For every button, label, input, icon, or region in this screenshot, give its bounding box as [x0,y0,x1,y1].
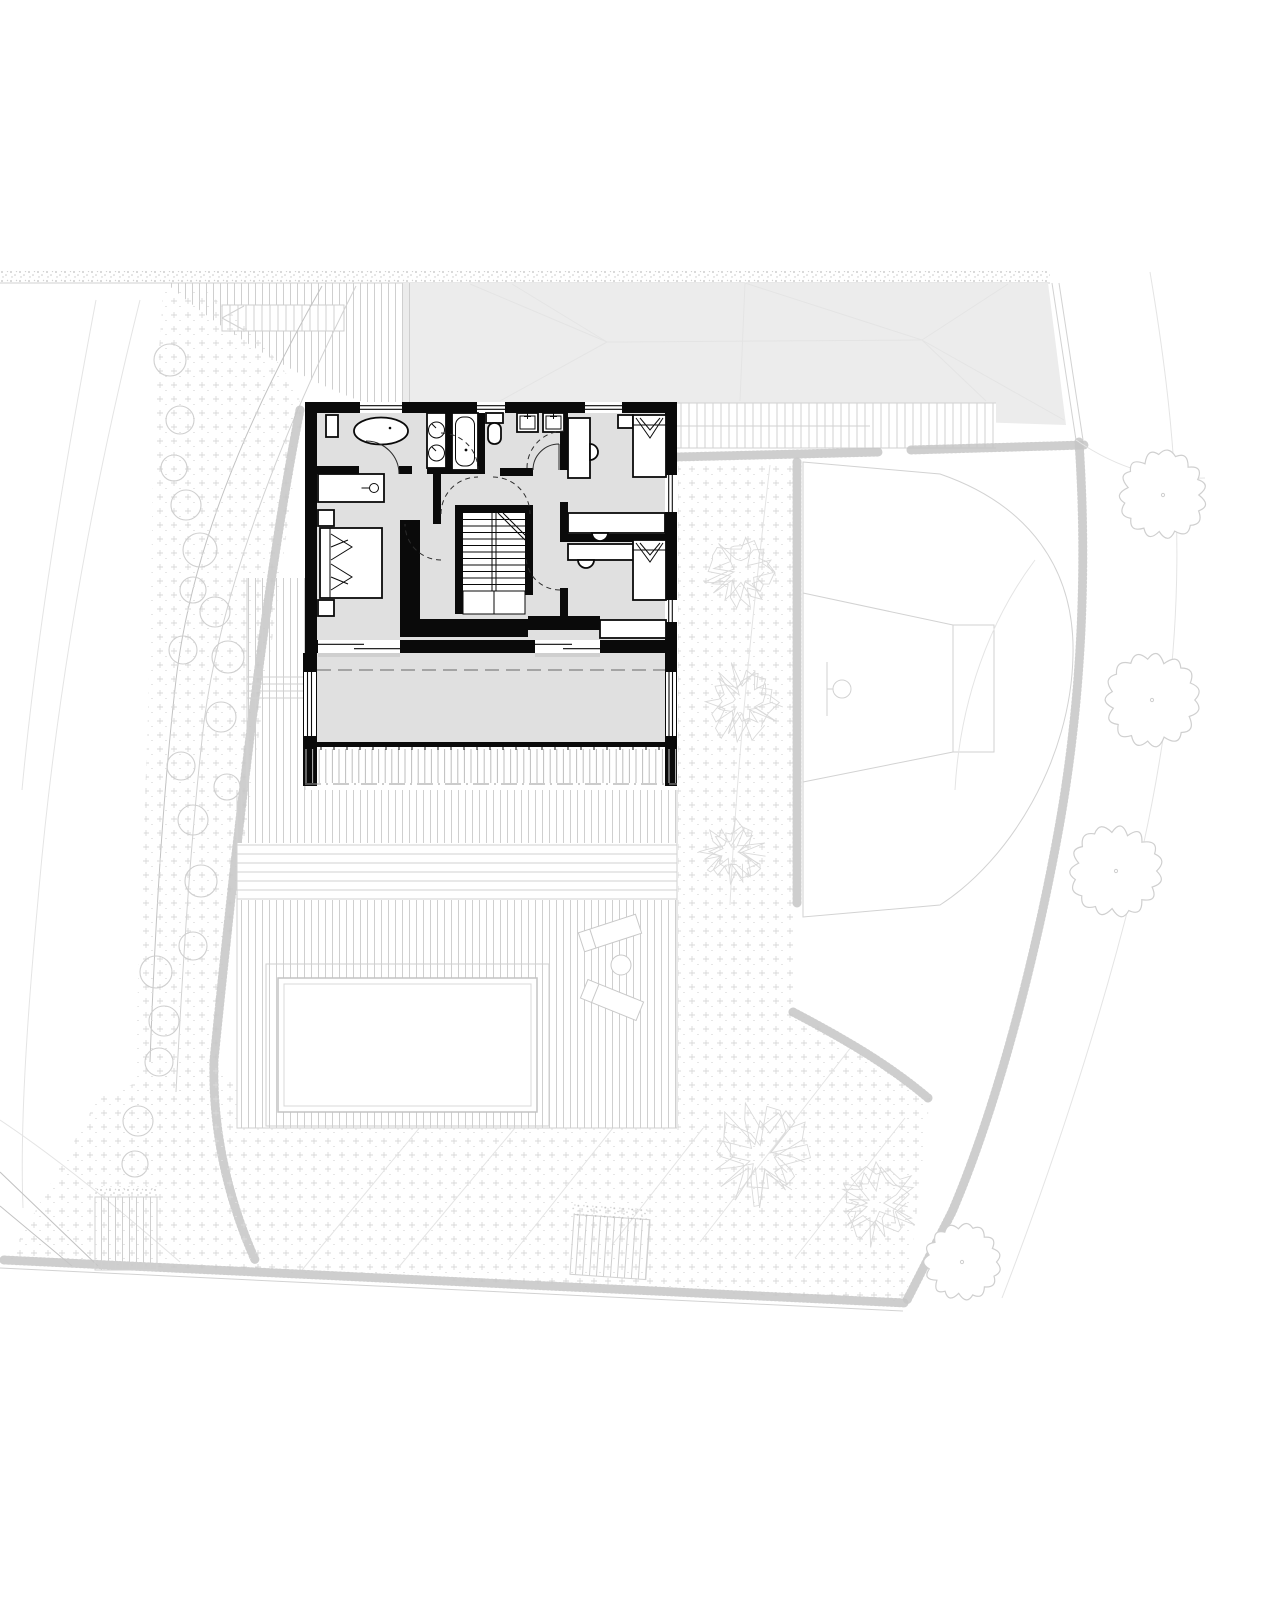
plan-sheet [0,0,1280,1600]
side-table [611,955,631,975]
desk [568,513,665,533]
tree [1070,826,1162,917]
single-bed [633,415,666,477]
tree [1105,653,1199,746]
wardrobe [568,418,590,478]
toilet [486,413,503,444]
balcony-slab [317,653,665,745]
double-washbasin [427,413,446,468]
desk [568,544,638,560]
stair [463,513,530,614]
tree [1119,450,1205,538]
nightstand [318,600,334,616]
chair [578,560,594,568]
single-bed [633,540,666,600]
tree [924,1223,1001,1299]
road-edge [0,271,1050,283]
double-bed [320,528,382,598]
dressing-shelf [318,474,384,502]
bath-cabinet [326,415,338,437]
threshold [535,653,600,657]
deck-steps [237,843,677,900]
basketball-court [803,462,1073,917]
threshold [318,653,400,657]
house-floor-plan [303,402,677,786]
chair [590,444,598,460]
built-in-bathtub [452,413,478,470]
nightstand [618,415,633,428]
chair [592,533,608,541]
swimming-pool [266,964,549,1126]
louvers [305,747,677,784]
freestanding-tub [354,418,408,445]
sideboard [600,620,666,638]
master-bedroom-furniture [318,474,384,616]
nightstand [318,510,334,526]
site-plan-canvas [0,0,1280,1600]
